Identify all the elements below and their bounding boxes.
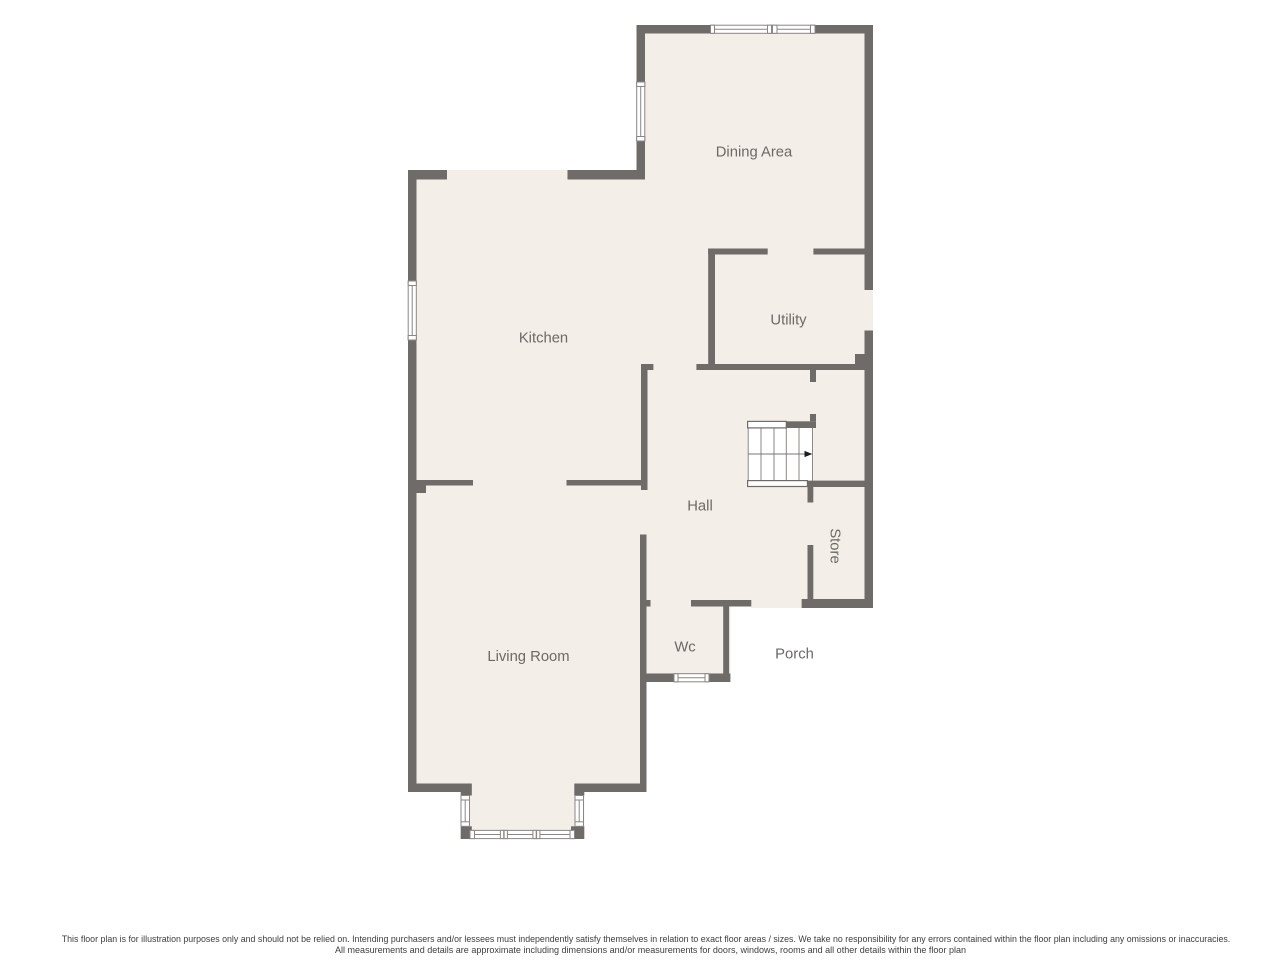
svg-text:Living Room: Living Room [487,649,569,665]
svg-text:All measurements and details a: All measurements and details are approxi… [335,945,966,955]
svg-text:Kitchen: Kitchen [519,331,568,347]
svg-text:This floor plan is for illustr: This floor plan is for illustration purp… [62,934,1231,944]
svg-text:Wc: Wc [674,640,696,656]
svg-text:Store: Store [827,528,843,563]
svg-text:Dining Area: Dining Area [716,145,793,161]
svg-text:Hall: Hall [687,499,713,515]
svg-text:Porch: Porch [775,647,814,663]
svg-text:Utility: Utility [770,313,807,329]
